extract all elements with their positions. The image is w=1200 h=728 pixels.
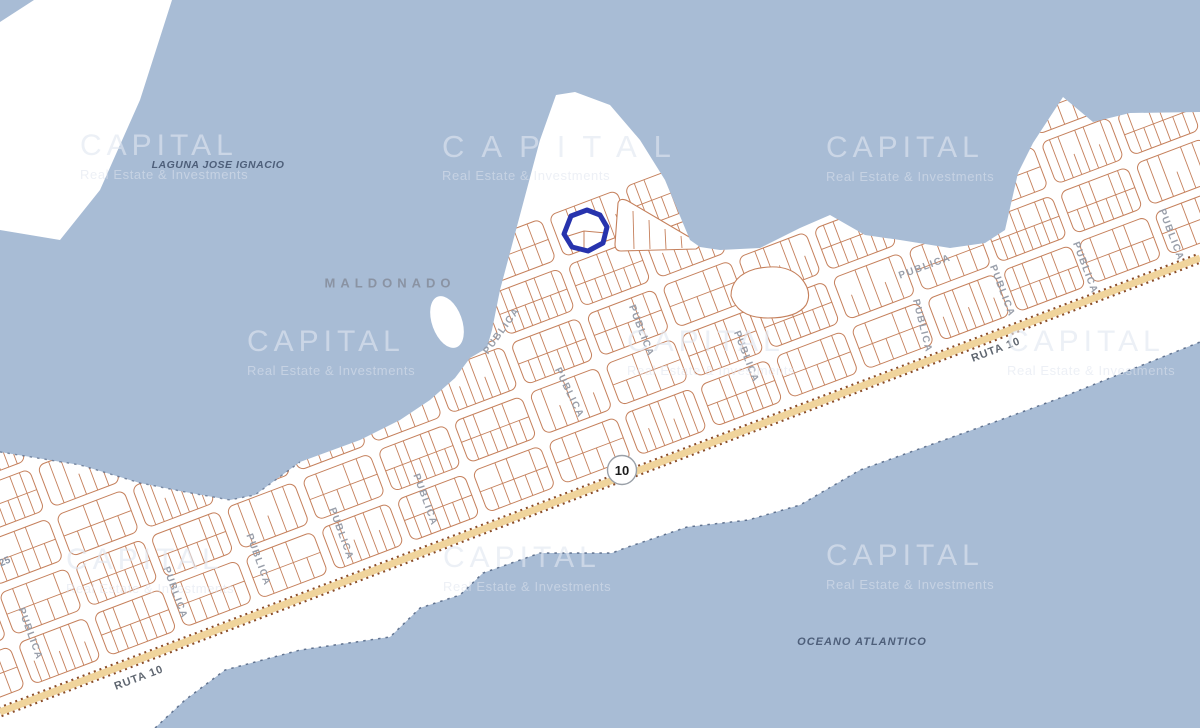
map-graphic: 10 [0, 0, 1200, 728]
parcel-block [0, 469, 44, 536]
parcel-block [18, 618, 101, 685]
parcel-block [681, 310, 764, 377]
parcel-block [0, 597, 6, 664]
parcel-block [151, 511, 234, 578]
parcel-block [75, 540, 158, 607]
parcel-block [0, 568, 82, 635]
parcel-block [586, 289, 669, 356]
parcel-block [321, 503, 404, 570]
corner-water-wedge [0, 0, 34, 22]
parcel-block [1078, 217, 1161, 284]
parcel-block [492, 268, 575, 335]
route-shield: 10 [608, 456, 637, 485]
highlight-parcel[interactable] [564, 210, 607, 251]
parcel-block [529, 368, 612, 435]
parcel-block [1135, 138, 1200, 205]
parcel-block [832, 253, 915, 320]
parcel-block [56, 490, 139, 557]
parcel-block [454, 396, 537, 463]
parcel-block [94, 589, 177, 656]
parcel-block [927, 274, 1010, 341]
parcel-block [378, 425, 461, 492]
parcel-block [851, 303, 934, 370]
route-shield-number: 10 [615, 463, 629, 478]
parcel-block [397, 474, 480, 541]
parcel-block [169, 560, 252, 627]
parcel-block [700, 360, 783, 427]
map-canvas[interactable]: 10 PUBLICA PUBLICA PUBLICA PUBLICA PUBLI… [0, 0, 1200, 728]
parcel-block [1060, 167, 1143, 234]
parcel-block [1041, 117, 1124, 184]
round-block [731, 267, 809, 318]
parcel-block [511, 318, 594, 385]
parcel-block [472, 446, 555, 513]
parcel-block [1003, 245, 1086, 312]
parcel-block [624, 389, 707, 456]
parcel-block [775, 331, 858, 398]
parcel-block [605, 339, 688, 406]
parcel-block [245, 532, 328, 599]
parcel-block [302, 454, 385, 521]
